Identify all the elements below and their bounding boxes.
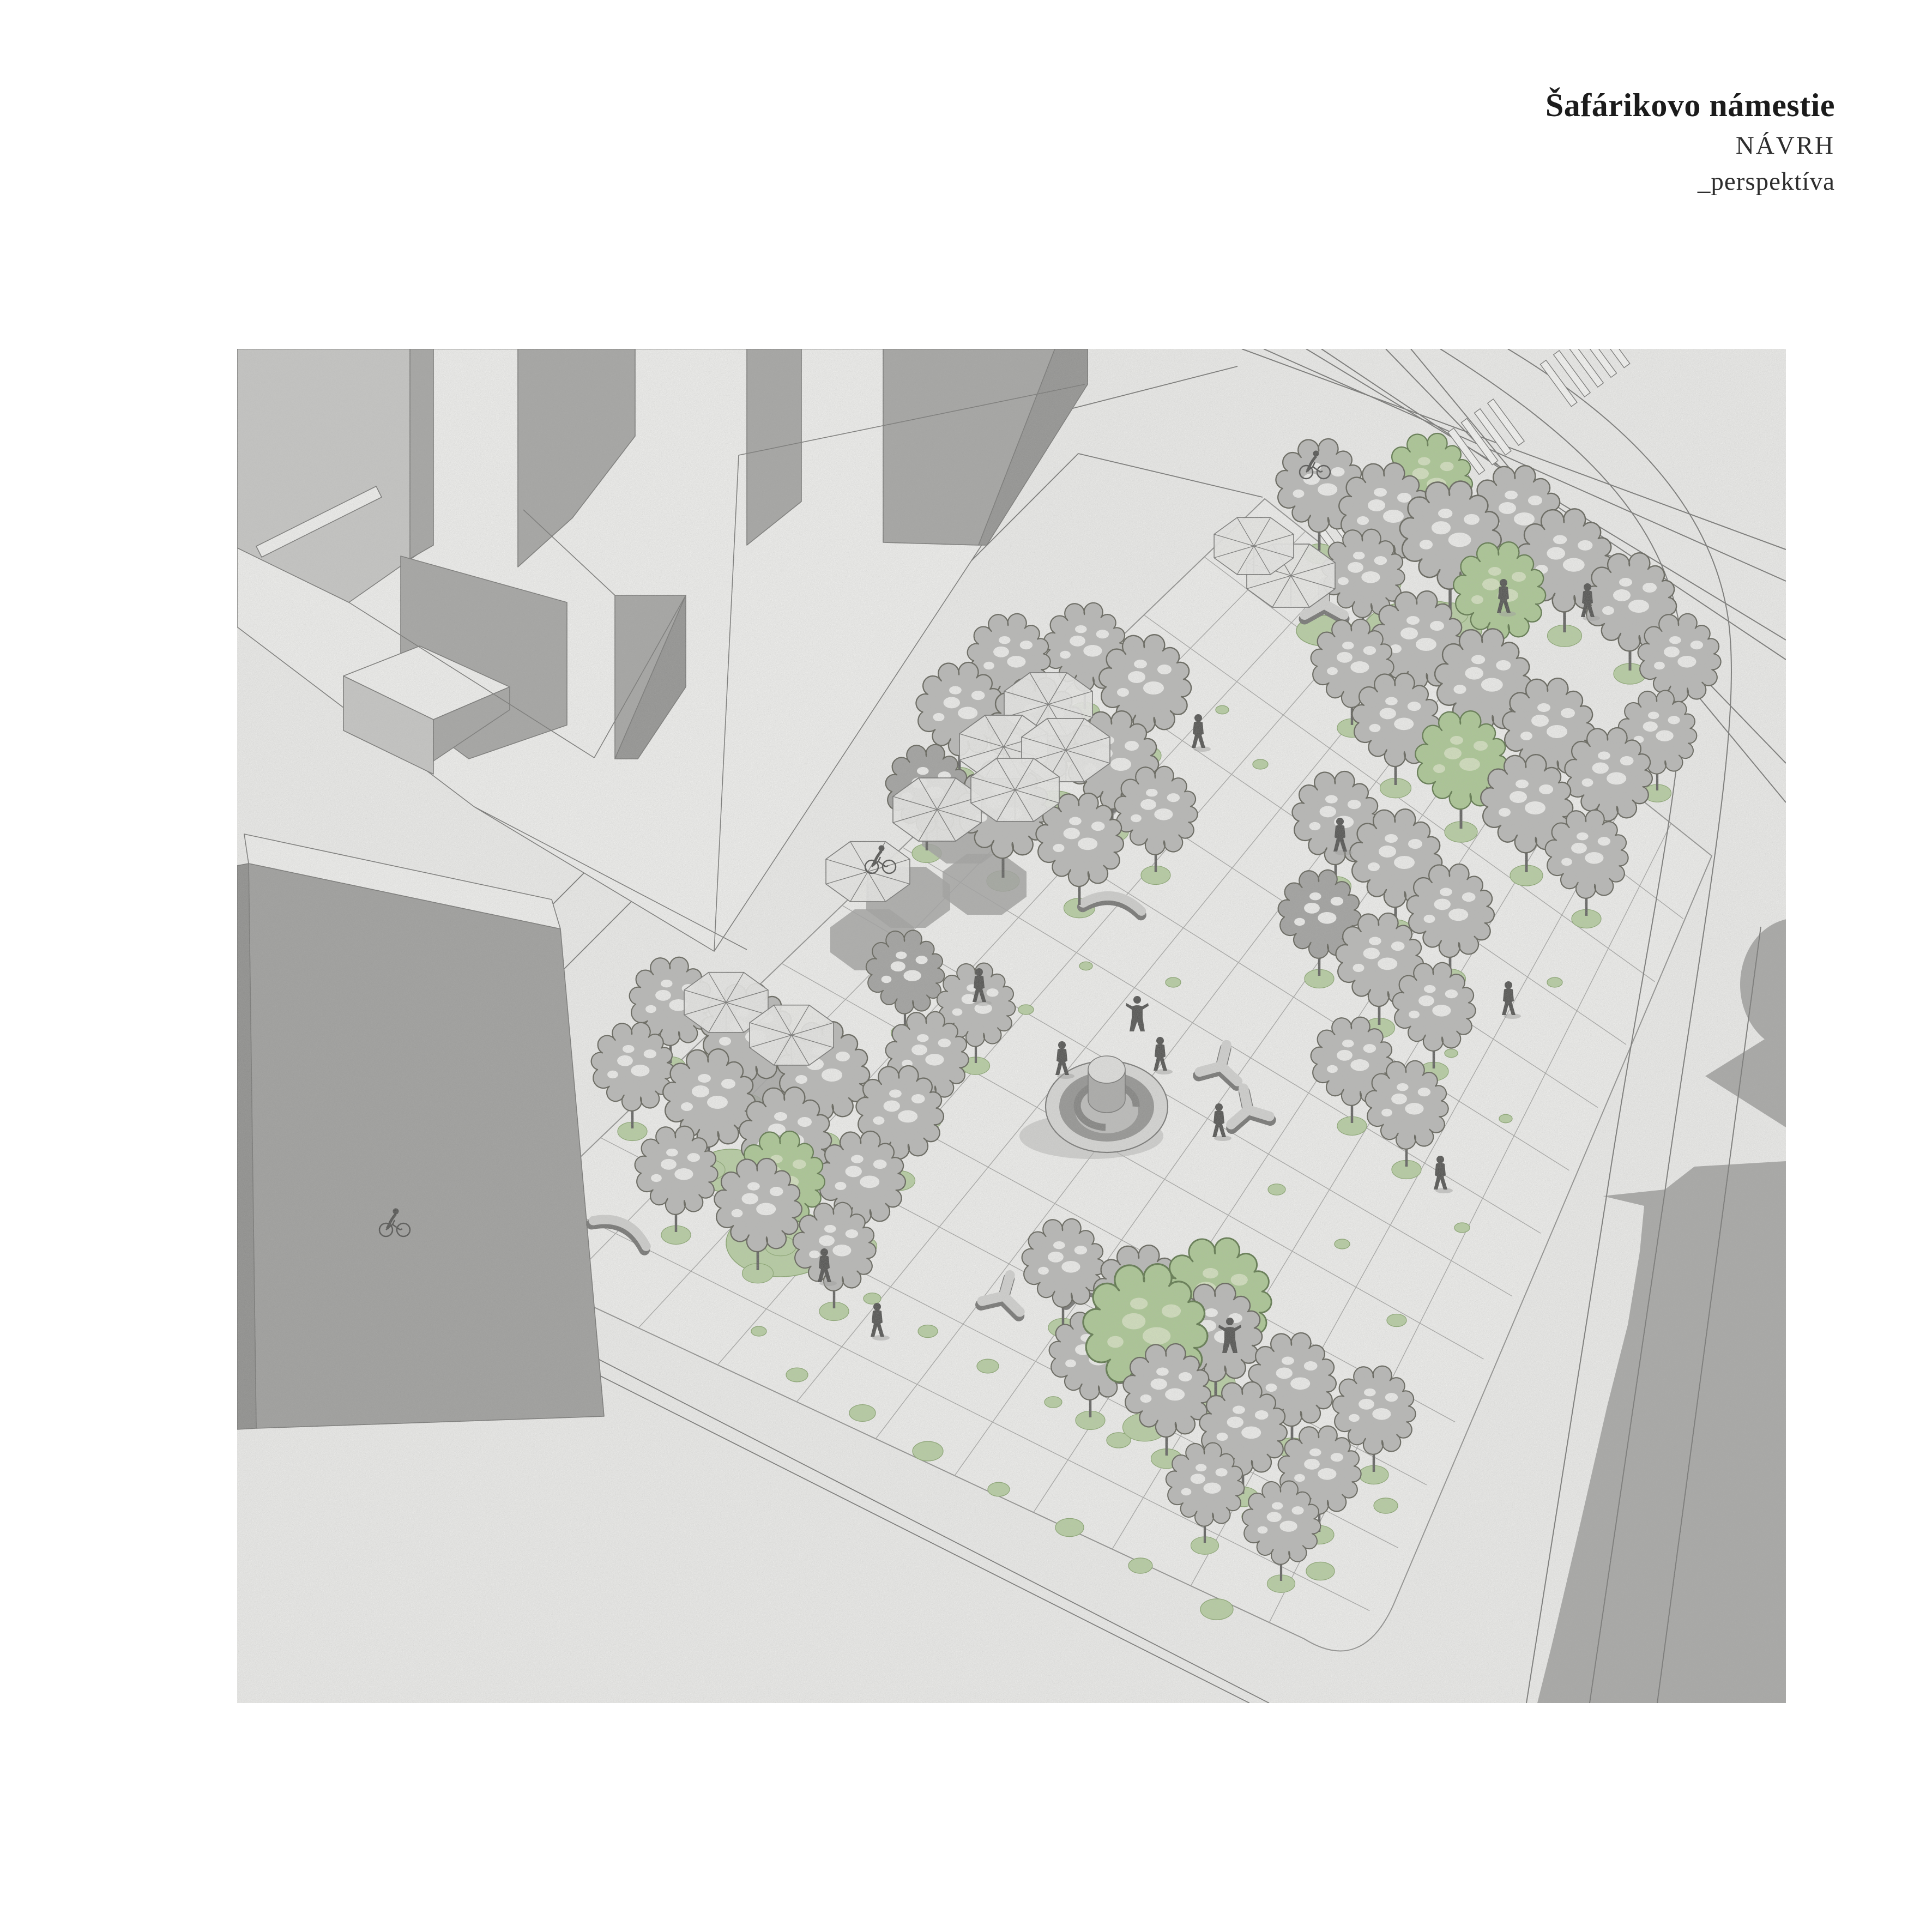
green-grid-circle [864, 1293, 881, 1304]
page-title: Šafárikovo námestie [1545, 87, 1835, 123]
title-block: Šafárikovo námestie NÁVRH _perspektíva [1545, 87, 1835, 196]
green-grid-circle [988, 1482, 1010, 1496]
building-face [249, 864, 604, 1428]
green-grid-circle [1445, 1049, 1458, 1057]
parasol [1214, 517, 1294, 574]
green-grid-circle [1454, 1223, 1470, 1233]
parasol [893, 778, 981, 841]
green-grid-circle [1055, 1518, 1084, 1536]
presentation-sheet: { "titleblock": { "title": "Šafárikovo n… [0, 0, 1932, 1932]
umbrella-shadow [943, 854, 1027, 915]
green-grid-circle [1200, 1599, 1233, 1620]
green-grid-circle [1079, 962, 1092, 970]
green-grid-circle [1306, 1562, 1335, 1580]
parasol [971, 758, 1059, 822]
green-grid-circle [786, 1368, 808, 1382]
building-shadow [1740, 918, 1853, 1051]
green-grid-circle [1335, 1239, 1350, 1249]
green-grid-circle [918, 1325, 938, 1337]
parasol [750, 1005, 834, 1065]
green-grid-circle [751, 1326, 766, 1336]
green-grid-circle [1128, 1558, 1152, 1573]
drawing-area [237, 321, 1853, 1703]
site-plan-perspective-rendering [0, 0, 1932, 1932]
green-grid-circle [1253, 759, 1268, 769]
green-grid-circle [1216, 705, 1229, 714]
green-grid-circle [1018, 1005, 1034, 1015]
green-grid-circle [1268, 1184, 1285, 1195]
green-grid-circle [1547, 977, 1562, 987]
green-grid-circle [1374, 1498, 1398, 1513]
fountain-column-top [1088, 1056, 1125, 1083]
building-face [410, 349, 433, 559]
green-grid-circle [977, 1359, 999, 1373]
page-subtitle: NÁVRH [1545, 132, 1835, 160]
page-subsubtitle: _perspektíva [1545, 168, 1835, 196]
green-grid-circle [849, 1405, 876, 1422]
green-grid-circle [1045, 1397, 1062, 1408]
green-grid-circle [913, 1441, 943, 1461]
green-grid-circle [1387, 1314, 1406, 1326]
green-grid-circle [1499, 1114, 1512, 1122]
green-grid-circle [1166, 977, 1181, 987]
